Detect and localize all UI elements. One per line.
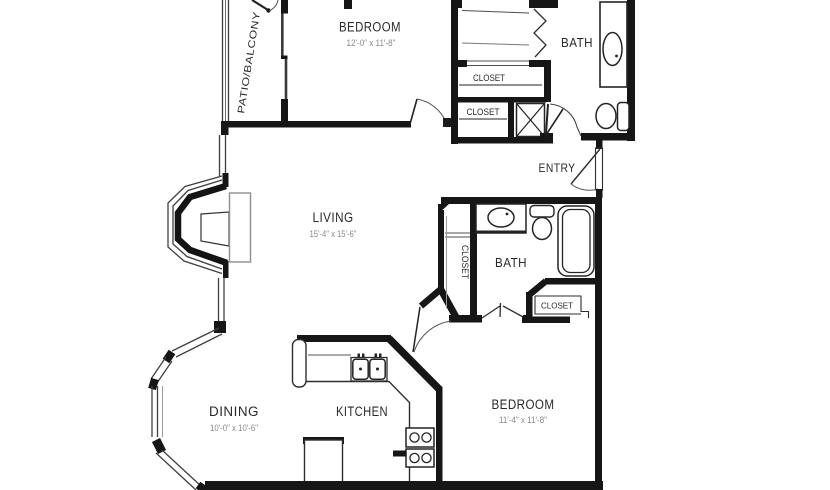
- svg-text:BATH: BATH: [495, 256, 527, 270]
- svg-text:KITCHEN: KITCHEN: [336, 404, 388, 419]
- svg-text:CLOSET: CLOSET: [460, 245, 470, 280]
- svg-text:BEDROOM: BEDROOM: [339, 20, 401, 35]
- svg-text:15'-4" x 15'-6": 15'-4" x 15'-6": [310, 229, 357, 239]
- svg-text:BEDROOM: BEDROOM: [492, 397, 555, 412]
- svg-text:CLOSET: CLOSET: [467, 107, 500, 117]
- svg-text:CLOSET: CLOSET: [473, 73, 506, 83]
- svg-text:LIVING: LIVING: [313, 210, 354, 225]
- svg-text:CLOSET: CLOSET: [541, 302, 573, 311]
- svg-text:BATH: BATH: [561, 36, 593, 50]
- svg-text:10'-0" x 10'-6": 10'-0" x 10'-6": [210, 423, 258, 433]
- svg-text:DINING: DINING: [209, 404, 259, 419]
- svg-text:12'-0" x 11'-8": 12'-0" x 11'-8": [347, 38, 396, 48]
- svg-text:11'-4" x 11'-8": 11'-4" x 11'-8": [499, 415, 547, 425]
- svg-text:ENTRY: ENTRY: [539, 161, 576, 175]
